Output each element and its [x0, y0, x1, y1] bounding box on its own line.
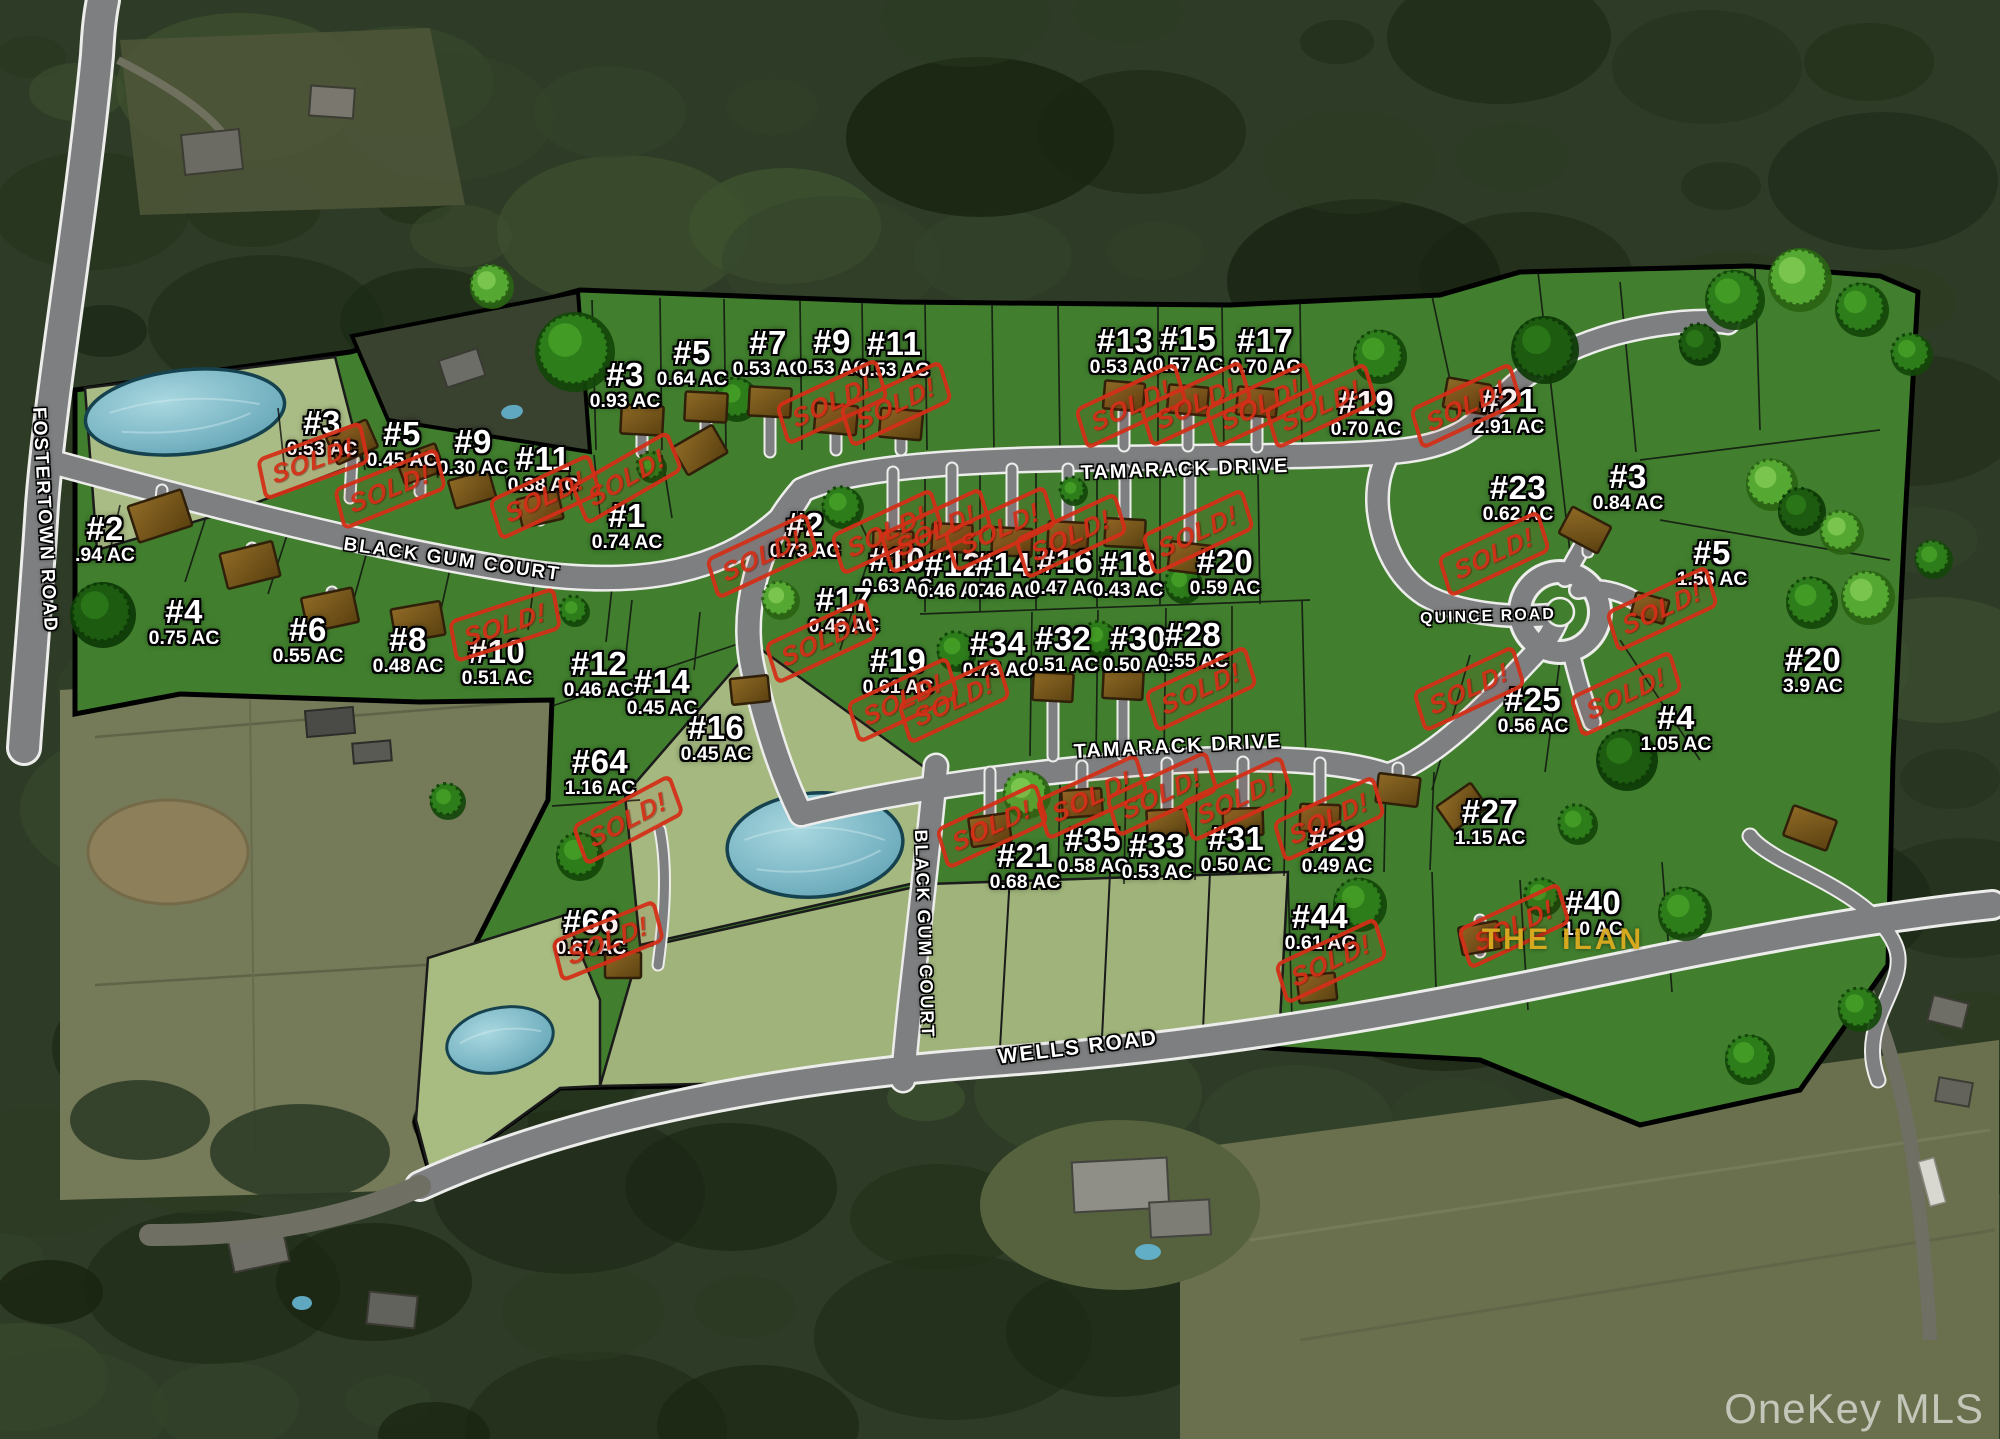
lot-acreage: 0.53 AC [1122, 863, 1193, 883]
lot-number: #33 [1122, 829, 1193, 863]
lot-label: #160.45 AC [681, 711, 752, 765]
lot-acreage: 0.75 AC [149, 629, 220, 649]
lot-number: #3 [590, 358, 661, 392]
lot-number: #13 [1090, 324, 1161, 358]
road-label: BLACK GUM COURT [910, 829, 938, 1039]
lot-number: #40 [1563, 886, 1623, 920]
lot-acreage: 0.74 AC [592, 533, 663, 553]
road-label: BLACK GUM COURT [342, 534, 562, 586]
lot-acreage: 0.53 AC [733, 360, 804, 380]
watermark: OneKey MLS [1724, 1385, 1984, 1433]
lot-acreage: 0.59 AC [1190, 579, 1261, 599]
lot-number: #16 [681, 711, 752, 745]
lot-number: #3 [1593, 460, 1664, 494]
lot-number: #4 [149, 595, 220, 629]
lot-acreage: 0.58 AC [1058, 857, 1129, 877]
lot-label: #120.46 AC [564, 647, 635, 701]
lot-number: #8 [373, 623, 444, 657]
lot-number: #5 [1677, 536, 1748, 570]
lot-label: #60.55 AC [273, 613, 344, 667]
lot-acreage: 0.46 AC [968, 582, 1039, 602]
lot-acreage: 0.48 AC [373, 657, 444, 677]
lot-number: #2 [75, 512, 135, 546]
lot-label: #130.53 AC [1090, 324, 1161, 378]
lot-label: #2.94 AC [75, 512, 135, 566]
lot-number: #28 [1158, 618, 1229, 652]
lot-acreage: 0.93 AC [590, 392, 661, 412]
ilan-label: THE ILAN [1482, 923, 1644, 957]
lot-acreage: 0.46 AC [564, 681, 635, 701]
lot-number: #6 [273, 613, 344, 647]
lot-number: #9 [438, 425, 509, 459]
lot-acreage: 1.15 AC [1455, 829, 1526, 849]
lot-number: #14 [627, 665, 698, 699]
plat-map: #2.94 AC#30.53 AC#50.45 AC#90.30 AC#110.… [0, 0, 2000, 1439]
lot-number: #15 [1153, 322, 1224, 356]
lot-label: #70.53 AC [733, 326, 804, 380]
lot-acreage: 1.05 AC [1641, 735, 1712, 755]
lot-acreage: 0.45 AC [681, 745, 752, 765]
lot-label: #30.93 AC [590, 358, 661, 412]
lot-label: #90.30 AC [438, 425, 509, 479]
lot-number: #4 [1641, 701, 1712, 735]
lot-number: #12 [564, 647, 635, 681]
lot-acreage: 0.30 AC [438, 459, 509, 479]
lot-label: #41.05 AC [1641, 701, 1712, 755]
lot-number: #5 [657, 336, 728, 370]
lot-label: #641.16 AC [565, 745, 636, 799]
lot-acreage: 0.51 AC [1028, 656, 1099, 676]
sold-stamp: SOLD! [705, 512, 819, 601]
lot-acreage: 0.84 AC [1593, 494, 1664, 514]
lot-number: #34 [963, 627, 1034, 661]
lot-acreage: 0.50 AC [1201, 856, 1272, 876]
lot-label: #230.62 AC [1483, 471, 1554, 525]
lot-label: #271.15 AC [1455, 795, 1526, 849]
lot-acreage: 0.49 AC [1302, 857, 1373, 877]
road-label: TAMARACK DRIVE [1073, 730, 1283, 764]
lot-acreage: 0.55 AC [273, 647, 344, 667]
lot-acreage: 0.43 AC [1093, 581, 1164, 601]
lot-number: #20 [1783, 643, 1843, 677]
lot-label: #203.9 AC [1783, 643, 1843, 697]
lot-number: #64 [565, 745, 636, 779]
lot-acreage: 0.70 AC [1331, 420, 1402, 440]
lot-acreage: 0.64 AC [657, 370, 728, 390]
road-label: QUINCE ROAD [1420, 606, 1556, 629]
labels-layer: #2.94 AC#30.53 AC#50.45 AC#90.30 AC#110.… [0, 0, 2000, 1439]
lot-number: #44 [1285, 900, 1356, 934]
lot-label: #210.68 AC [990, 839, 1061, 893]
lot-number: #11 [859, 327, 930, 361]
lot-acreage: 0.47 AC [1030, 579, 1101, 599]
lot-label: #330.53 AC [1122, 829, 1193, 883]
lot-number: #5 [367, 417, 438, 451]
lot-acreage: 0.56 AC [1498, 717, 1569, 737]
lot-label: #320.51 AC [1028, 622, 1099, 676]
lot-number: #23 [1483, 471, 1554, 505]
lot-number: #7 [733, 326, 804, 360]
lot-number: #27 [1455, 795, 1526, 829]
lot-number: #17 [1230, 324, 1301, 358]
road-label: TAMARACK DRIVE [1080, 455, 1289, 485]
lot-acreage: 0.51 AC [462, 669, 533, 689]
lot-number: #9 [797, 325, 868, 359]
lot-acreage: 3.9 AC [1783, 677, 1843, 697]
lot-acreage: .94 AC [75, 546, 135, 566]
sold-stamp: SOLD! [1605, 565, 1719, 654]
lot-label: #30.84 AC [1593, 460, 1664, 514]
lot-label: #40.75 AC [149, 595, 220, 649]
lot-acreage: 0.68 AC [990, 873, 1061, 893]
road-label: WELLS ROAD [997, 1026, 1160, 1069]
road-label: FOSTERTOWN ROAD [27, 407, 61, 634]
lot-label: #50.64 AC [657, 336, 728, 390]
lot-number: #32 [1028, 622, 1099, 656]
lot-label: #80.48 AC [373, 623, 444, 677]
